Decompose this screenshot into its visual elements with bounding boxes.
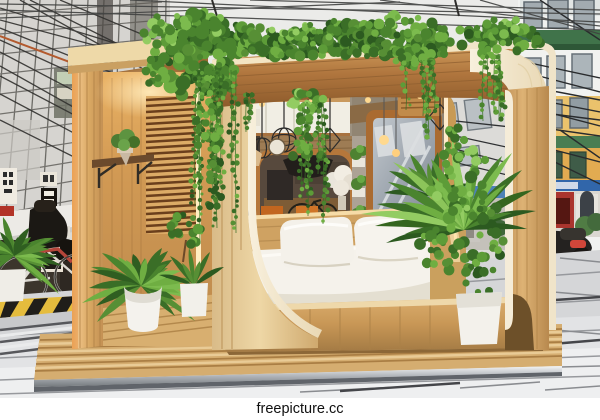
svg-text:freepicture.cc: freepicture.cc [256,401,343,417]
